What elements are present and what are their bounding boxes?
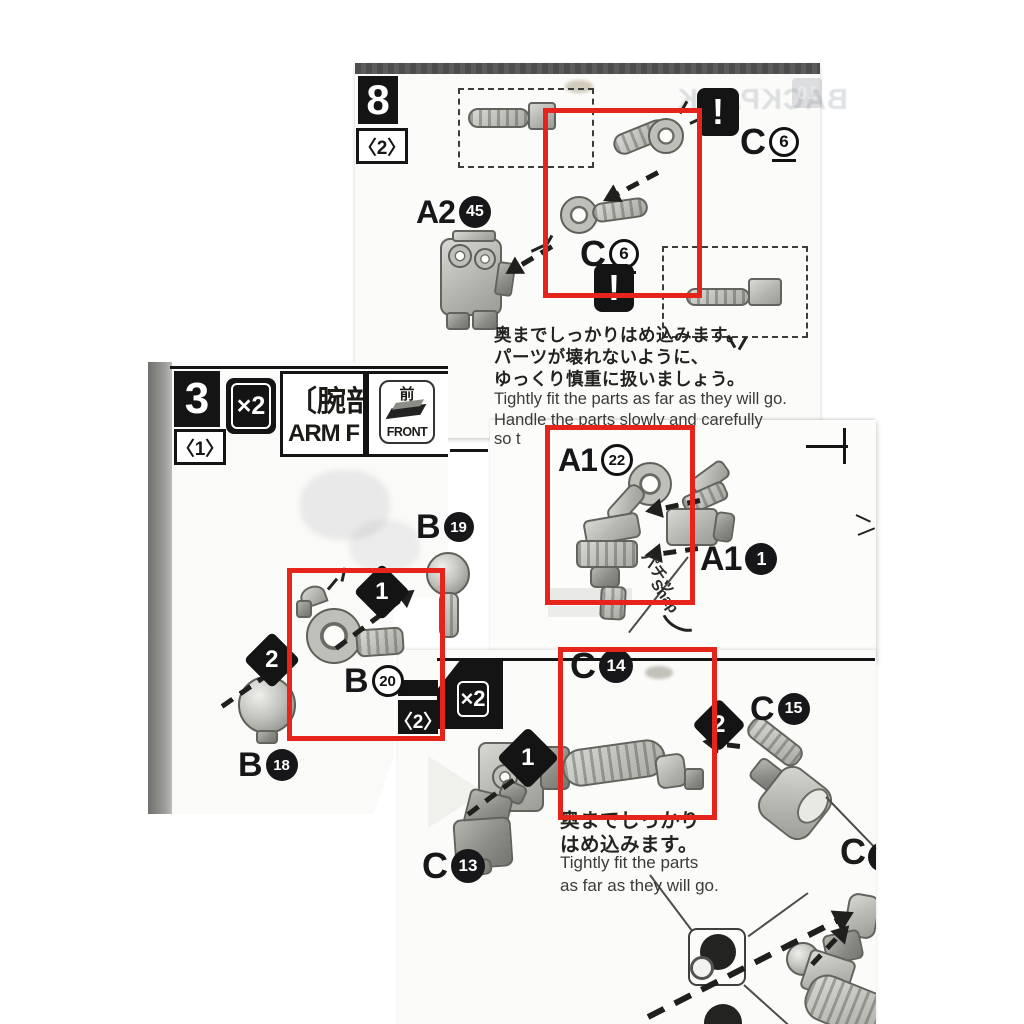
front-outer-box: 前 FRONT [366,371,448,457]
part-letter: B [238,748,262,782]
part-a2-socket-right [474,248,496,270]
page-top-edge [355,63,820,74]
caution-jp-line3: ゆっくり慎重に扱いましょう。 [494,366,745,391]
highlight-box-b20 [287,568,445,741]
warning-icon: ! [697,88,739,136]
part-number: 15 [778,693,810,725]
part-label-c13: C 13 [422,848,485,884]
step-number-8: 8 [358,76,398,124]
part-letter: A2 [416,196,455,228]
part-number: 13 [451,849,485,883]
part-letter: B [416,510,440,544]
part-number: 6 [769,127,799,157]
part-number: 18 [266,749,298,781]
multiplier-text: ×2 [457,681,489,717]
part-peg-right-block [748,278,782,306]
front-icon: 前 FRONT [379,380,435,444]
highlight-box-a1 [545,425,695,605]
part-number: 1 [745,543,777,575]
marker-number: 1 [521,744,534,772]
note-box-rule-left [450,449,488,452]
edge-part-cluster [778,888,876,1024]
part-label-b18: B 18 [238,748,298,782]
unit-count-text: 〈1〉 [176,434,225,461]
section-title-box: 〔腕部 ARM F [280,371,366,457]
multiplier-text: ×2 [231,383,271,429]
part-label-a2: A2 45 [416,196,491,228]
multiplier-x2-badge: ×2 [226,378,276,434]
part-letter: A1 [700,542,741,576]
highlight-box-c14 [558,647,717,820]
section-title-jp: 〔腕部 [288,378,366,420]
step-number-text: 8 [366,76,389,124]
section-title-en: ARM F [288,420,359,448]
unit-count-text: 〈2〉 [358,133,407,160]
unit-count-1: 〈1〉 [174,429,226,465]
multiplier-x2-badge-bottom: ×2 [452,676,494,722]
part-letter: C [750,692,774,726]
detail-callout-white-circle [690,956,714,980]
caution-en-line3: so t [494,430,521,449]
part-number-clipped [868,842,876,872]
part-number: 19 [444,512,474,542]
part-b18-neck [256,730,278,744]
part-a2-brow [452,230,496,242]
part-a2-foot-left [446,312,470,330]
manual-scan-photo: 3 〈1〉 ×2 〔腕部 ARM F 前 FRONT 8 〈2〉 BACKP [0,0,1024,1024]
step-number-3: 3 [174,371,220,427]
part-letter: C [840,834,865,872]
part-letter: C [740,124,765,160]
page-spine [148,362,172,814]
step-number-text: 3 [185,374,209,424]
showthrough-number-box: 10 [792,78,822,108]
part-label-a1-1: A1 1 [700,542,777,576]
caution-en-line1: Tightly fit the parts [560,853,698,873]
part-label-c15: C 15 [750,692,810,726]
part-label-c-cut: C [840,834,876,878]
header-top-rule [170,366,448,369]
warning-exclamation: ! [712,91,724,133]
part-a1-right-flap [712,511,736,543]
showthrough-number-text: 10 [796,83,818,104]
part-peg-top [468,108,530,128]
note-box-rule-right [806,445,848,448]
unit-count-2: 〈2〉 [356,128,408,164]
part-label-c6-top: C 6 [740,124,799,160]
marker-number: 2 [265,646,278,674]
caution-en-line1: Tightly fit the parts as far as they wil… [494,390,787,409]
highlight-box-c6 [543,108,702,298]
part-letter: C [422,848,447,884]
caution-en-line2: as far as they will go. [560,876,719,896]
part-label-b19: B 19 [416,510,474,544]
note-box-rule-corner [843,428,846,464]
part-a2-socket-left [448,244,472,268]
front-label: FRONT [381,425,433,439]
showthrough-blob [350,520,420,572]
part-number: 45 [459,196,491,228]
